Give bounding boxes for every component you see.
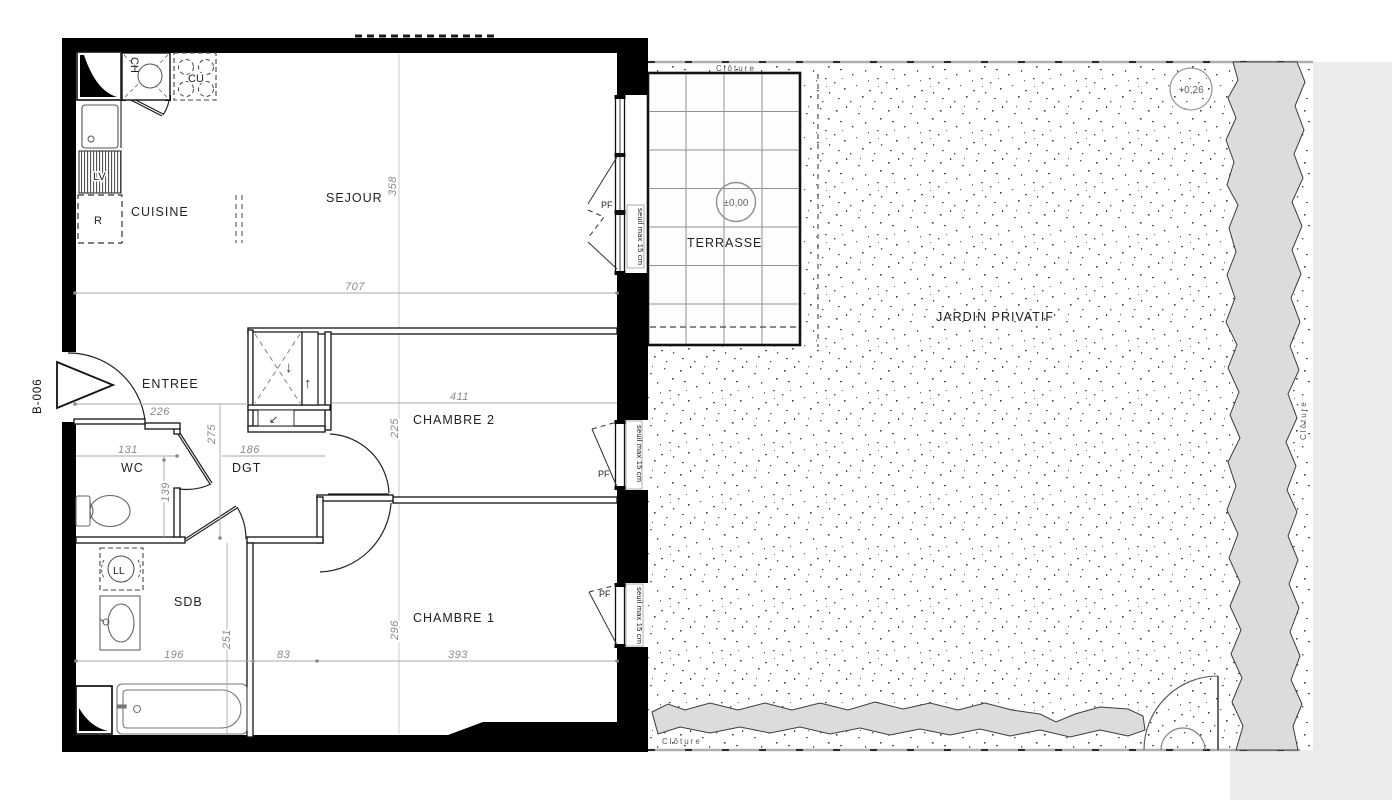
room-label-entree: ENTREE [142, 377, 199, 391]
cooktop: CU [174, 53, 216, 100]
threshold-sejour: seuil max 15 cm [627, 205, 645, 268]
wc-toilet [76, 496, 130, 527]
water-heater-label: CH [128, 57, 140, 73]
dim-living-depth: 358 [387, 176, 399, 196]
duct-down-arrow: ↓ [285, 359, 293, 376]
dim-bedroom2-width: 411 [450, 391, 469, 403]
window-sejour: PF seuil max 15 cm [588, 95, 645, 275]
pf-label-sejour: PF [601, 200, 613, 210]
room-label-sejour: SEJOUR [326, 191, 383, 205]
utility-arrow: ↙ [269, 414, 278, 426]
washer-label: LL [113, 565, 125, 577]
room-label-chambre1: CHAMBRE 1 [413, 611, 495, 625]
fridge: R [78, 195, 122, 243]
fence-label-top: Clôture [716, 64, 756, 73]
terrace-level-value: ±0,00 [724, 198, 749, 209]
bathroom-door [185, 506, 246, 541]
dim-hall-width: 186 [240, 444, 260, 456]
dim-entry-width: 226 [149, 406, 170, 418]
svg-text:seuil max 15 cm: seuil max 15 cm [636, 208, 645, 265]
window-bedroom2: PF seuil max 15 cm [592, 420, 644, 490]
counter-limit-dashed [236, 195, 242, 243]
window-bedroom1: PF seuil max 15 cm [589, 583, 644, 648]
dim-bath-width: 196 [164, 649, 184, 661]
bedroom1-door [320, 503, 391, 572]
dishwasher-label: LV [93, 171, 106, 183]
room-label-dgt: DGT [232, 461, 261, 475]
room-label-jardin: JARDIN PRIVATIF [936, 310, 1054, 324]
room-label-chambre2: CHAMBRE 2 [413, 413, 495, 427]
threshold-bedroom1: seuil max 15 cm [626, 584, 644, 646]
room-label-sdb: SDB [174, 595, 203, 609]
dim-bedroom1-width: 393 [448, 649, 468, 661]
entry-closet: ↓ ↑ ↙ [253, 332, 318, 426]
dim-living-width: 707 [345, 281, 365, 293]
floorplan-page: ±0,00 TERRASSE +0,26 JARDIN PRIVATIF Clô… [0, 0, 1392, 800]
dim-bath-depth: 251 [221, 629, 233, 650]
room-label-cuisine: CUISINE [131, 205, 189, 219]
dishwasher: LV [79, 151, 121, 193]
terrace: ±0,00 TERRASSE [648, 73, 800, 345]
entrance-marker: B-006 [32, 362, 113, 414]
pf-label-bedroom2: PF [598, 469, 610, 479]
washbasin [100, 596, 140, 650]
washing-machine: LL [100, 548, 143, 590]
kitchen-duct [77, 52, 121, 100]
bathtub [117, 684, 247, 734]
dim-wc-width: 131 [118, 444, 138, 456]
fridge-label: R [94, 215, 102, 227]
exterior-walls [62, 38, 648, 752]
pf-label-bedroom1: PF [599, 589, 611, 599]
dim-wc-depth: 139 [160, 482, 172, 502]
room-label-wc: WC [121, 461, 144, 475]
utility-box: ↙ [258, 410, 294, 426]
garden-level-value: +0,26 [1178, 85, 1204, 96]
bathroom-duct [76, 686, 112, 734]
dim-bedroom2-depth: 225 [389, 418, 401, 439]
bedroom2-door [328, 434, 389, 494]
kitchen-sink [82, 105, 118, 148]
threshold-bedroom2: seuil max 15 cm [626, 421, 644, 489]
fence-label-right: Clôture [1299, 400, 1308, 440]
dim-hall-depth: 275 [206, 424, 218, 445]
fence-label-bottom: Clôture [662, 737, 702, 746]
cooktop-label: CU [188, 73, 204, 85]
svg-text:seuil max 15 cm: seuil max 15 cm [635, 425, 644, 482]
room-label-terrasse: TERRASSE [687, 236, 762, 250]
floorplan-drawing: ±0,00 TERRASSE +0,26 JARDIN PRIVATIF Clô… [0, 0, 1392, 800]
unit-reference: B-006 [32, 378, 44, 414]
duct-up-arrow: ↑ [304, 375, 312, 392]
garden-area: ±0,00 TERRASSE +0,26 JARDIN PRIVATIF Clô… [648, 62, 1392, 800]
dimension-lines [75, 293, 617, 734]
water-heater-closet: CH [122, 53, 170, 100]
dimension-dots [73, 291, 619, 663]
dim-alcove-width: 83 [277, 649, 291, 661]
dim-bedroom1-depth: 296 [389, 620, 401, 641]
svg-text:seuil max 15 cm: seuil max 15 cm [635, 587, 644, 644]
